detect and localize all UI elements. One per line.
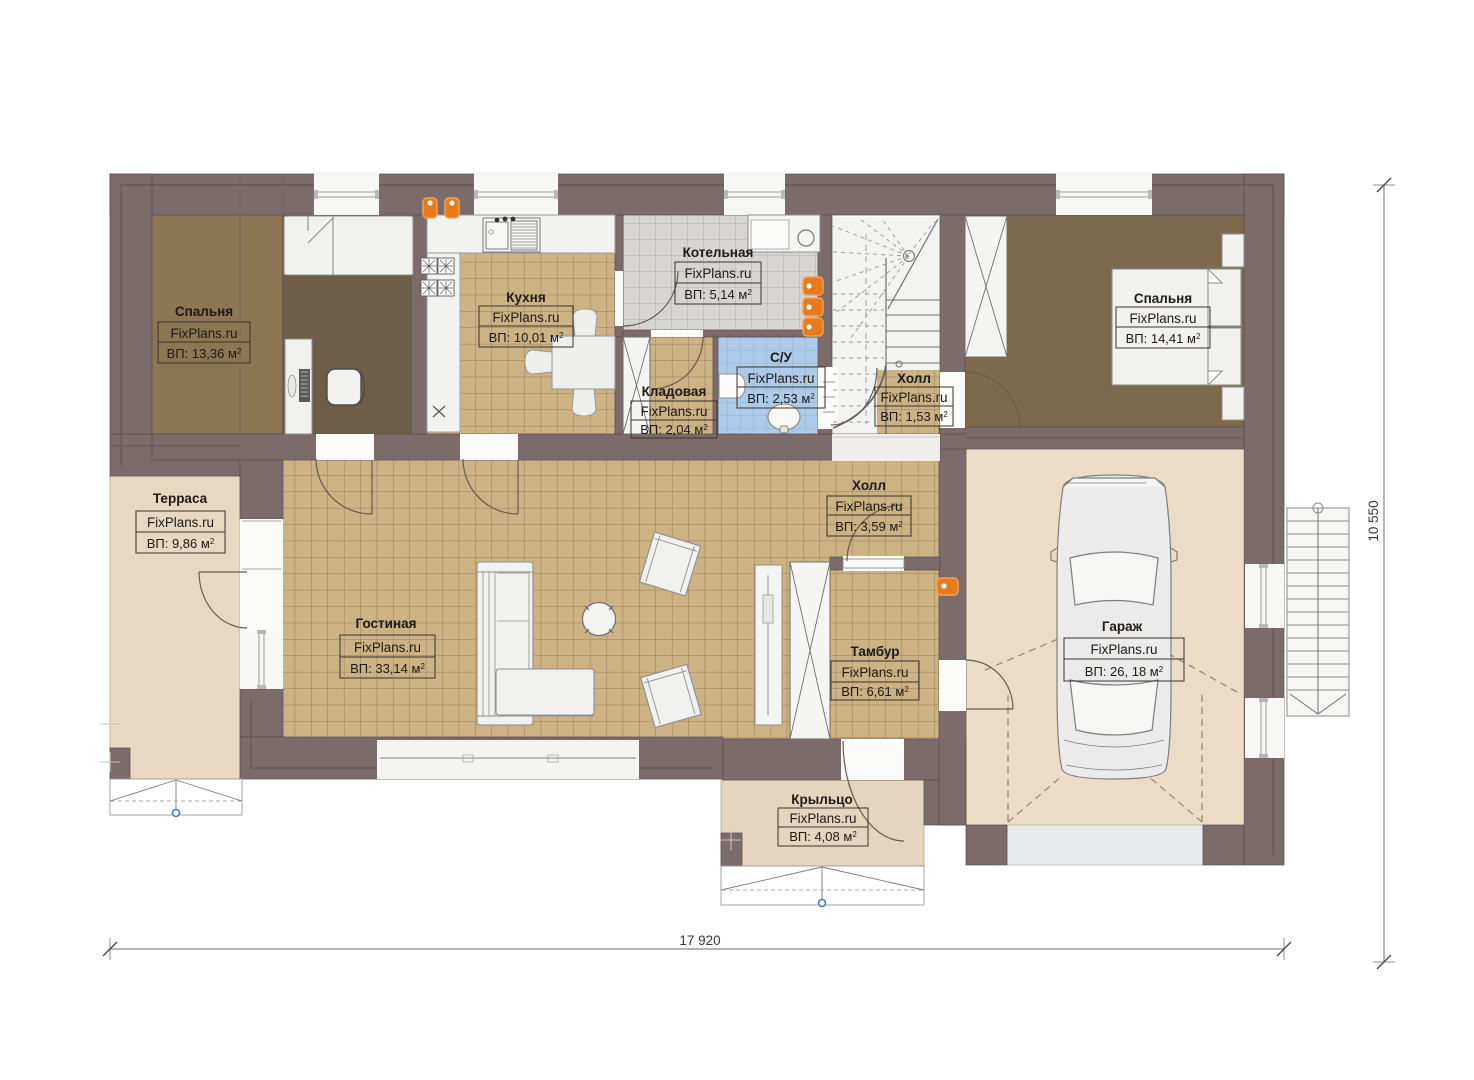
- svg-text:Терраса: Терраса: [153, 491, 208, 506]
- svg-text:ВП: 5,14 м2: ВП: 5,14 м2: [684, 287, 752, 302]
- svg-text:FixPlans.ru: FixPlans.ru: [493, 310, 560, 325]
- svg-text:ВП: 4,08 м2: ВП: 4,08 м2: [789, 829, 857, 844]
- svg-text:FixPlans.ru: FixPlans.ru: [171, 326, 238, 341]
- svg-text:ВП: 10,01 м2: ВП: 10,01 м2: [489, 330, 564, 345]
- svg-text:ВП: 14,41 м2: ВП: 14,41 м2: [1126, 331, 1201, 346]
- svg-text:Гостиная: Гостиная: [355, 616, 416, 631]
- svg-text:ВП: 9,86 м2: ВП: 9,86 м2: [147, 536, 215, 551]
- svg-text:FixPlans.ru: FixPlans.ru: [354, 640, 421, 655]
- svg-text:Гараж: Гараж: [1102, 619, 1143, 634]
- svg-text:ВП: 2,04 м2: ВП: 2,04 м2: [640, 422, 708, 437]
- svg-text:Холл: Холл: [852, 478, 886, 493]
- svg-text:ВП: 2,53 м2: ВП: 2,53 м2: [747, 391, 815, 406]
- svg-text:ВП: 26, 18 м2: ВП: 26, 18 м2: [1085, 664, 1164, 679]
- svg-text:ВП: 3,59 м2: ВП: 3,59 м2: [835, 519, 903, 534]
- svg-text:ВП: 6,61 м2: ВП: 6,61 м2: [841, 684, 909, 699]
- svg-text:Кухня: Кухня: [506, 290, 545, 305]
- svg-text:FixPlans.ru: FixPlans.ru: [1130, 311, 1197, 326]
- svg-text:17 920: 17 920: [679, 933, 720, 948]
- svg-text:ВП: 13,36 м2: ВП: 13,36 м2: [167, 346, 242, 361]
- svg-text:ВП: 33,14 м2: ВП: 33,14 м2: [350, 661, 425, 676]
- svg-text:Крыльцо: Крыльцо: [791, 792, 852, 807]
- svg-text:Спальня: Спальня: [175, 304, 233, 319]
- svg-text:Холл: Холл: [897, 371, 931, 386]
- svg-text:FixPlans.ru: FixPlans.ru: [1091, 642, 1158, 657]
- svg-text:FixPlans.ru: FixPlans.ru: [881, 390, 948, 405]
- svg-text:FixPlans.ru: FixPlans.ru: [790, 811, 857, 826]
- svg-text:FixPlans.ru: FixPlans.ru: [641, 404, 708, 419]
- svg-text:Котельная: Котельная: [683, 245, 754, 260]
- svg-text:FixPlans.ru: FixPlans.ru: [748, 371, 815, 386]
- svg-text:FixPlans.ru: FixPlans.ru: [836, 499, 903, 514]
- svg-text:ВП: 1,53 м2: ВП: 1,53 м2: [880, 409, 948, 424]
- svg-text:С/У: С/У: [770, 350, 793, 365]
- svg-text:Тамбур: Тамбур: [851, 644, 900, 659]
- svg-text:FixPlans.ru: FixPlans.ru: [147, 515, 214, 530]
- svg-text:Кладовая: Кладовая: [642, 384, 707, 399]
- svg-text:FixPlans.ru: FixPlans.ru: [842, 665, 909, 680]
- svg-text:10 550: 10 550: [1366, 500, 1381, 541]
- svg-text:FixPlans.ru: FixPlans.ru: [685, 266, 752, 281]
- svg-text:Спальня: Спальня: [1134, 291, 1192, 306]
